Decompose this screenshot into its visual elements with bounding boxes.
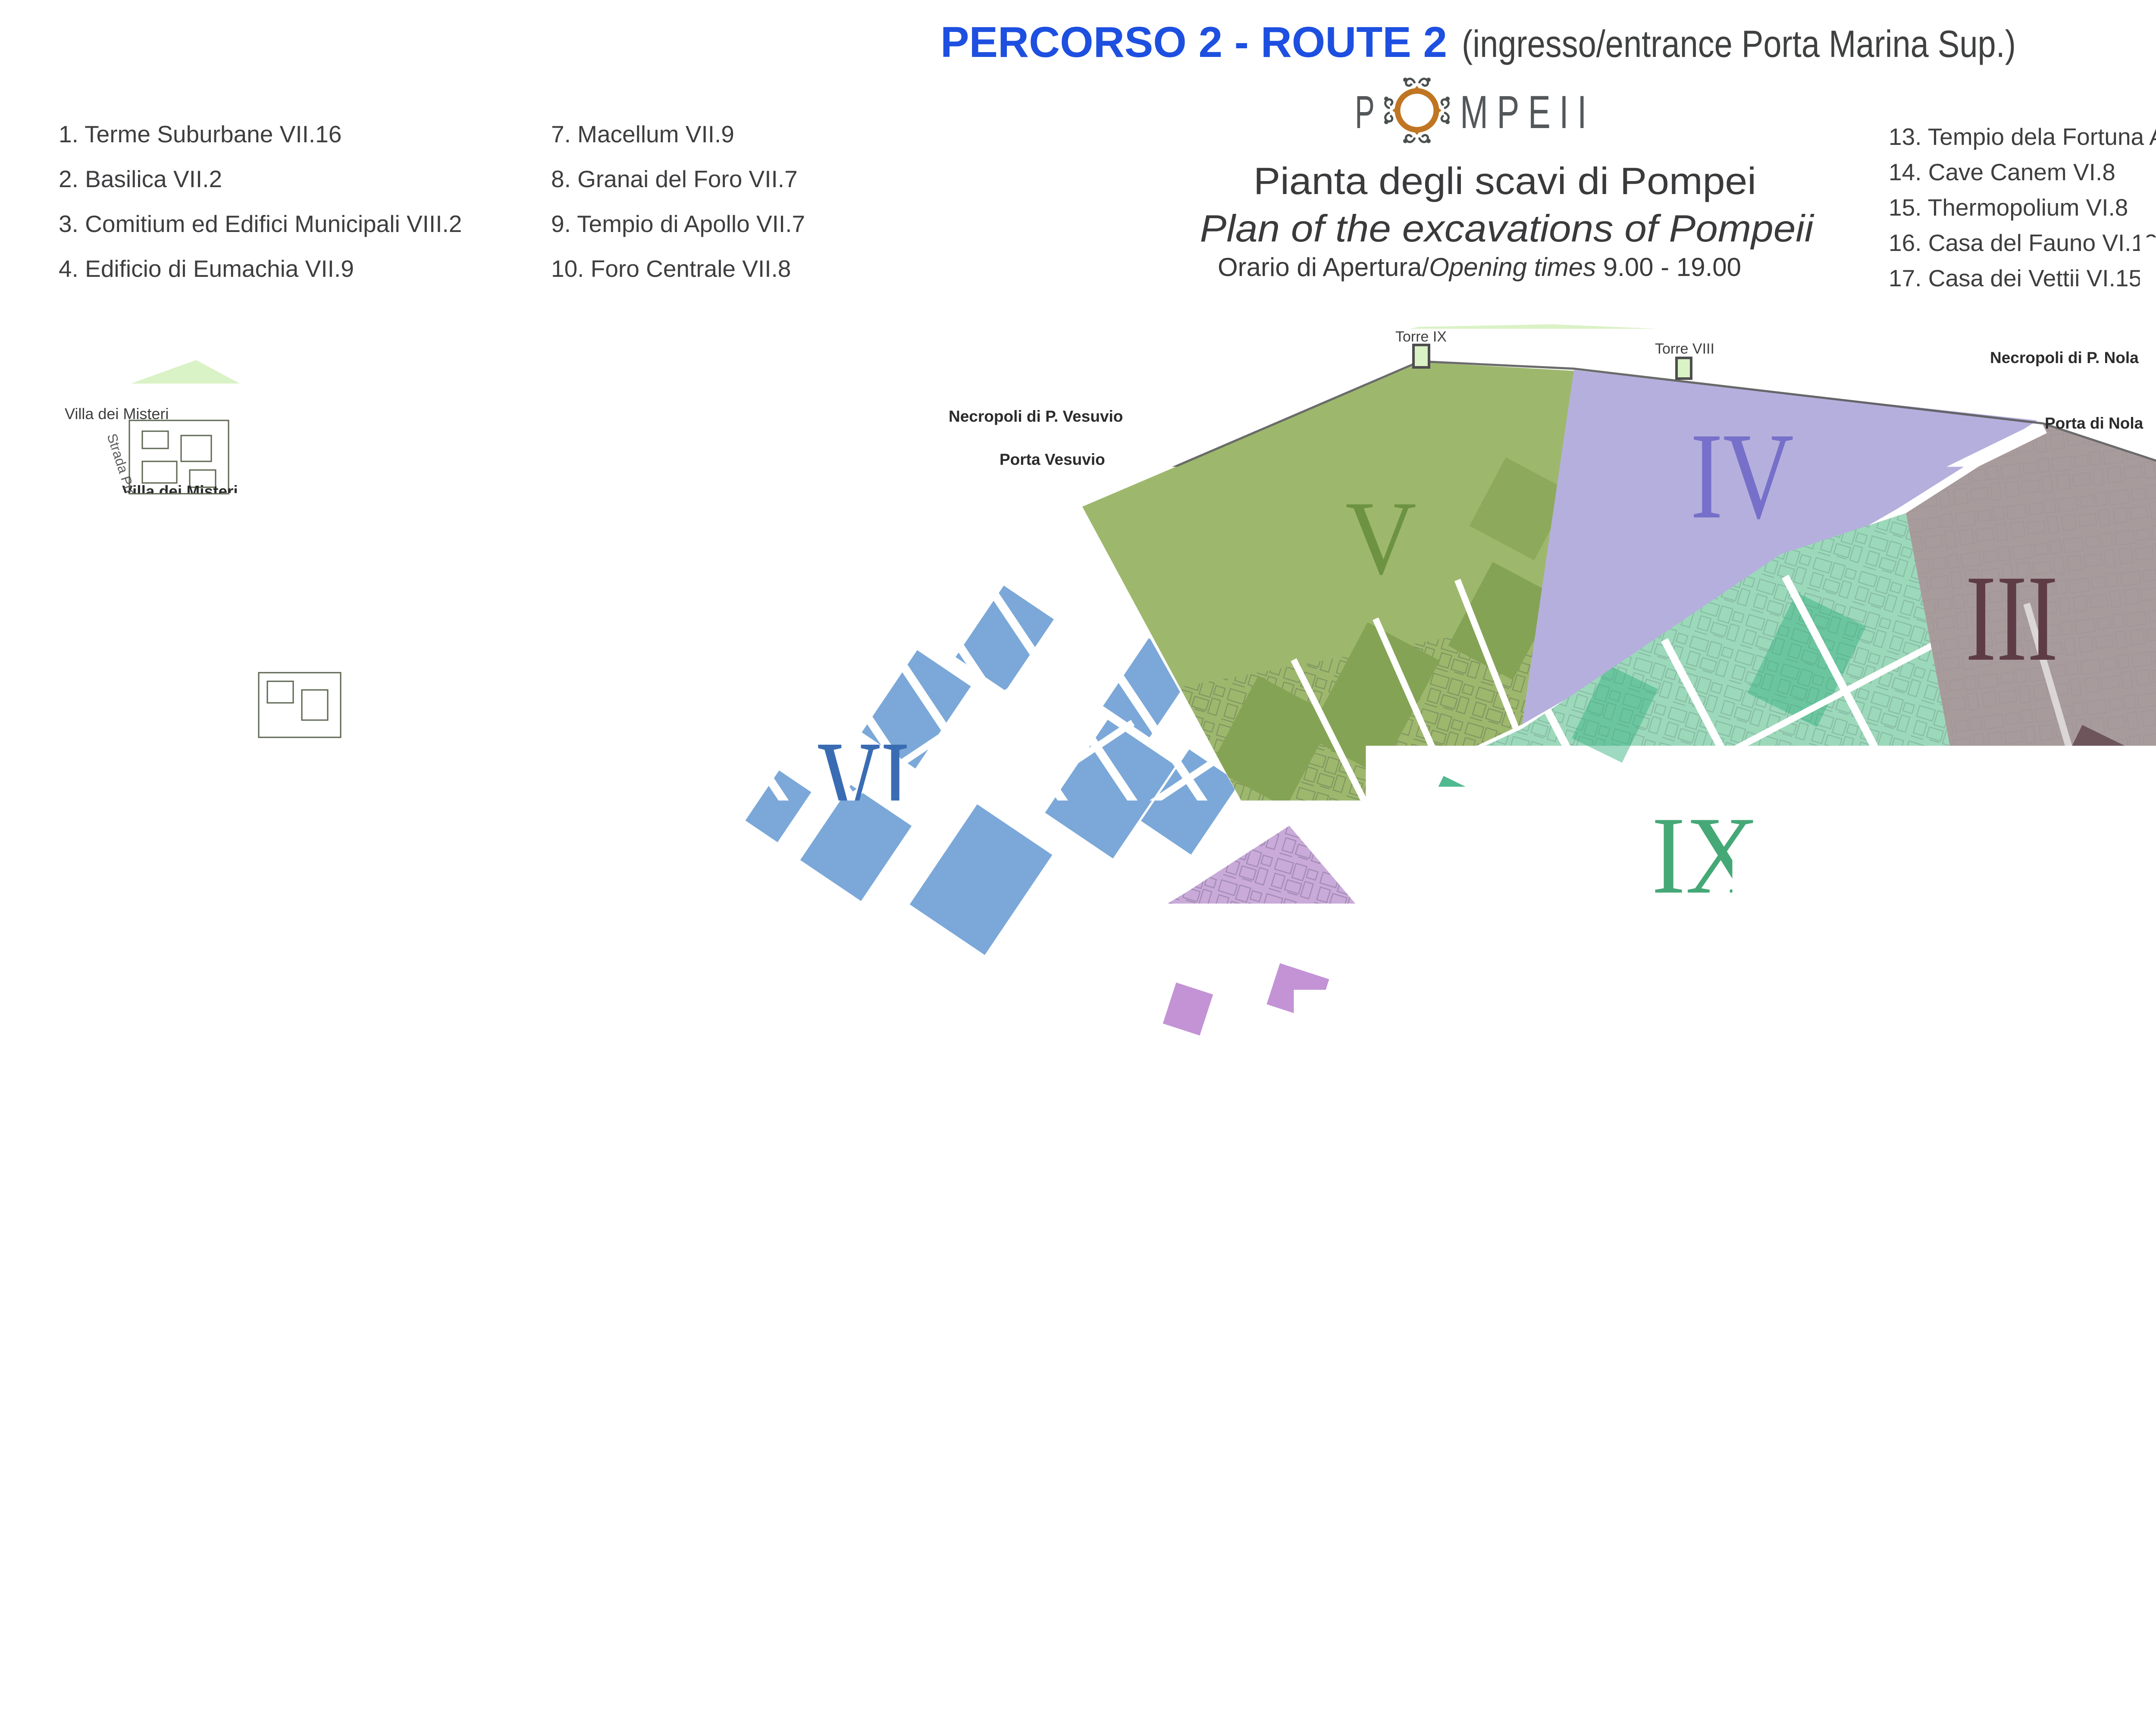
svg-text:WC: WC — [1754, 1355, 1790, 1379]
svg-text:Autogrill: Autogrill — [116, 1098, 216, 1125]
svg-text:24: 24 — [1554, 1336, 1581, 1363]
svg-text:23: 23 — [1593, 1155, 1620, 1182]
svg-text:10. Foro Centrale VII.8: 10. Foro Centrale VII.8 — [551, 255, 791, 282]
svg-text:11: 11 — [1132, 1129, 1157, 1156]
svg-text:INGRESSO-: INGRESSO- — [347, 1400, 546, 1438]
svg-text:Villa di Diomede: Villa di Diomede — [276, 810, 388, 828]
svg-text:5: 5 — [1217, 1157, 1230, 1184]
svg-text:exit: exit — [1475, 1476, 1504, 1497]
svg-text:13. Tempio dela Fortuna August: 13. Tempio dela Fortuna Augusta VII.4 — [1889, 123, 2156, 150]
svg-text:exit: exit — [1107, 1480, 1137, 1501]
svg-text:6. Tempio del Genius Augusti V: 6. Tempio del Genius Augusti VII.9 — [59, 345, 421, 372]
svg-text:30: 30 — [1752, 1056, 1779, 1083]
svg-text:Necropoli di P. Vesuvio: Necropoli di P. Vesuvio — [949, 407, 1123, 425]
svg-text:Piazza Esedra: Piazza Esedra — [1112, 1501, 1212, 1519]
svg-text:USCITA: USCITA — [946, 1547, 1074, 1591]
svg-text:Torre XIII: Torre XIII — [836, 1402, 899, 1420]
svg-text:3. Comitium ed Edifici Municip: 3. Comitium ed Edifici Municipali VIII.2 — [59, 210, 462, 237]
svg-text:follow the blue arrow: follow the blue arrow — [286, 1626, 664, 1669]
svg-text:11. Tempio di Giove VII.8: 11. Tempio di Giove VII.8 — [551, 300, 814, 327]
svg-text:Villa delle Colonne a Mosaico: Villa delle Colonne a Mosaico — [410, 617, 613, 635]
svg-text:15. Thermopolium VI.8: 15. Thermopolium VI.8 — [1889, 194, 2128, 221]
svg-text:EMERGENCY MEDICAL SERVICE: EMERGENCY MEDICAL SERVICE — [134, 1319, 426, 1340]
svg-text:12. Archi Onorari VII.8: 12. Archi Onorari VII.8 — [551, 345, 784, 372]
svg-text:bookshop: bookshop — [910, 1670, 1025, 1698]
svg-text:Terme Suburbane: Terme Suburbane — [795, 1302, 929, 1320]
svg-text:2. Basilica VII.2: 2. Basilica VII.2 — [59, 166, 222, 192]
svg-text:18: 18 — [1205, 691, 1232, 718]
svg-text:16. Casa del Fauno VI.12: 16. Casa del Fauno VI.12 — [1889, 229, 2156, 256]
svg-text:SS18: SS18 — [1918, 1521, 1956, 1542]
svg-text:Villa dei Misteri: Villa dei Misteri — [65, 405, 169, 423]
svg-text:IX: IX — [1651, 794, 1759, 917]
svg-text:checkpoint: checkpoint — [518, 1496, 659, 1526]
svg-text:9. Tempio di Apollo VII.7: 9. Tempio di Apollo VII.7 — [551, 210, 805, 237]
svg-text:4. Edificio di Eumachia VII.9: 4. Edificio di Eumachia VII.9 — [59, 255, 354, 282]
svg-text:19: 19 — [1190, 579, 1216, 606]
svg-text:Necropoli di P. Nola: Necropoli di P. Nola — [1990, 349, 2139, 367]
svg-text:V: V — [1345, 479, 1416, 596]
svg-text:17. Casa dei Vettii VI.15: 17. Casa dei Vettii VI.15 — [1889, 265, 2142, 291]
svg-text:Pianta degli scavi di Pompei: Pianta degli scavi di Pompei — [1253, 160, 1756, 202]
svg-text:7: 7 — [1179, 1075, 1192, 1102]
svg-text:A: A — [1088, 1045, 1107, 1077]
svg-text:VIII: VIII — [1371, 1309, 1526, 1443]
svg-text:GUARDIA MEDICA: GUARDIA MEDICA — [134, 1297, 298, 1318]
svg-text:Necropoli di P. Ercolano: Necropoli di P. Ercolano — [399, 812, 581, 829]
svg-text:water: water — [116, 1194, 175, 1221]
svg-text:Torre X: Torre X — [972, 525, 1020, 542]
svg-text:12: 12 — [1119, 1089, 1145, 1116]
svg-text:III: III — [1965, 550, 2058, 687]
svg-text:VI: VI — [817, 714, 910, 862]
svg-text:26: 26 — [1653, 1336, 1680, 1363]
svg-text:18. Casa degli Amorini dorati: 18. Casa degli Amorini dorati VI.16 — [1889, 300, 2156, 327]
svg-text:Porta di Stabia: Porta di Stabia — [1802, 1425, 1914, 1443]
svg-text:Casina dell'Aquila: Casina dell'Aquila — [1705, 990, 1829, 1008]
svg-text:6: 6 — [1200, 1119, 1214, 1147]
svg-text:exit: exit — [610, 1449, 677, 1485]
svg-text:1: 1 — [844, 1323, 857, 1350]
svg-text:Porta Marina: Porta Marina — [814, 1442, 903, 1460]
svg-text:toilets: toilets — [910, 1640, 981, 1667]
svg-text:(Porta Marina: (Porta Marina — [1112, 1522, 1206, 1539]
svg-text:USCITA: USCITA — [546, 1400, 671, 1438]
svg-text:follow the blue arrow: follow the blue arrow — [143, 1026, 350, 1051]
svg-text:1. Terme Suburbane VII.16: 1. Terme Suburbane VII.16 — [59, 121, 342, 147]
svg-text:Villa Imperiale: Villa Imperiale — [925, 1468, 1022, 1486]
svg-text:(ingresso/entrance Porta Marin: (ingresso/entrance Porta Marina Sup.) — [1462, 22, 2016, 65]
svg-text:Necropoli di P. Stabia: Necropoli di P. Stabia — [1805, 1454, 1967, 1471]
svg-text:ticket: ticket — [518, 1532, 588, 1562]
svg-text:Strada Provinciale Villa dei M: Strada Provinciale Villa dei Misteri — [664, 1125, 680, 1334]
svg-text:13: 13 — [1110, 974, 1137, 1001]
svg-text:Orario di Apertura/Opening tim: Orario di Apertura/Opening times 9.00 - … — [1218, 253, 1741, 282]
svg-text:9: 9 — [1107, 1241, 1120, 1268]
svg-text:10: 10 — [1156, 1211, 1183, 1238]
svg-text:Via Plinio: Via Plinio — [2009, 1458, 2072, 1485]
svg-text:17: 17 — [1125, 711, 1152, 738]
svg-text:Torre I: Torre I — [1478, 1432, 1520, 1449]
svg-text:I: I — [2006, 1180, 2037, 1281]
svg-text:WC: WC — [70, 1148, 102, 1169]
svg-text:Porta Ercolano: Porta Ercolano — [573, 793, 687, 811]
svg-text:14. Cave Canem VI.8: 14. Cave Canem VI.8 — [1889, 159, 2115, 185]
svg-text:P: P — [1355, 86, 1375, 138]
svg-text:7. Macellum VII.9: 7. Macellum VII.9 — [551, 121, 734, 147]
svg-text:8. Granai del Foro VII.7: 8. Granai del Foro VII.7 — [551, 166, 798, 192]
svg-text:27: 27 — [1707, 1383, 1734, 1410]
svg-text:Inferiore): Inferiore) — [1112, 1542, 1174, 1560]
svg-text:viewpoint: viewpoint — [116, 1244, 217, 1271]
svg-text:5. Santuario dei Lari Pubblici: 5. Santuario dei Lari Pubblici VII.9 — [59, 300, 416, 327]
svg-text:22: 22 — [1504, 1112, 1531, 1139]
svg-text:segui la freccia blu: segui la freccia blu — [337, 1577, 674, 1620]
svg-text:entrance-: entrance- — [454, 1449, 609, 1485]
svg-text:Porta di Nola: Porta di Nola — [2045, 414, 2143, 432]
svg-text:MPEII: MPEII — [1460, 86, 1595, 138]
svg-text:PERCORSO 2 - ROUTE 2: PERCORSO 2 - ROUTE 2 — [940, 18, 1447, 66]
svg-text:segui la freccia blu: segui la freccia blu — [143, 991, 329, 1016]
svg-text:WC: WC — [943, 1428, 978, 1452]
svg-text:Porta Vesuvio: Porta Vesuvio — [1000, 451, 1105, 468]
svg-text:Plan of the excavations of Pom: Plan of the excavations of Pompeii — [1200, 207, 1815, 250]
svg-text:Torre VIII: Torre VIII — [1655, 341, 1714, 357]
svg-text:3: 3 — [1216, 1312, 1229, 1339]
svg-text:Porta Marina: Porta Marina — [814, 1376, 911, 1394]
svg-text:toilets: toilets — [116, 1147, 179, 1174]
svg-text:exit: exit — [1015, 1589, 1077, 1630]
svg-text:A: A — [77, 1096, 95, 1124]
svg-text:Torre IX: Torre IX — [1395, 329, 1447, 345]
svg-text:(Superiore): (Superiore) — [814, 1461, 892, 1479]
svg-text:21: 21 — [1502, 846, 1529, 874]
svg-text:Torre XII: Torre XII — [458, 644, 513, 661]
svg-text:4: 4 — [1240, 1201, 1253, 1228]
svg-text:8: 8 — [1080, 1153, 1093, 1180]
svg-text:16: 16 — [1121, 823, 1147, 850]
svg-text:25: 25 — [1591, 1381, 1617, 1408]
svg-text:Torre II: Torre II — [2152, 1312, 2156, 1328]
svg-text:Villa di Cicerone: Villa di Cicerone — [470, 879, 582, 897]
